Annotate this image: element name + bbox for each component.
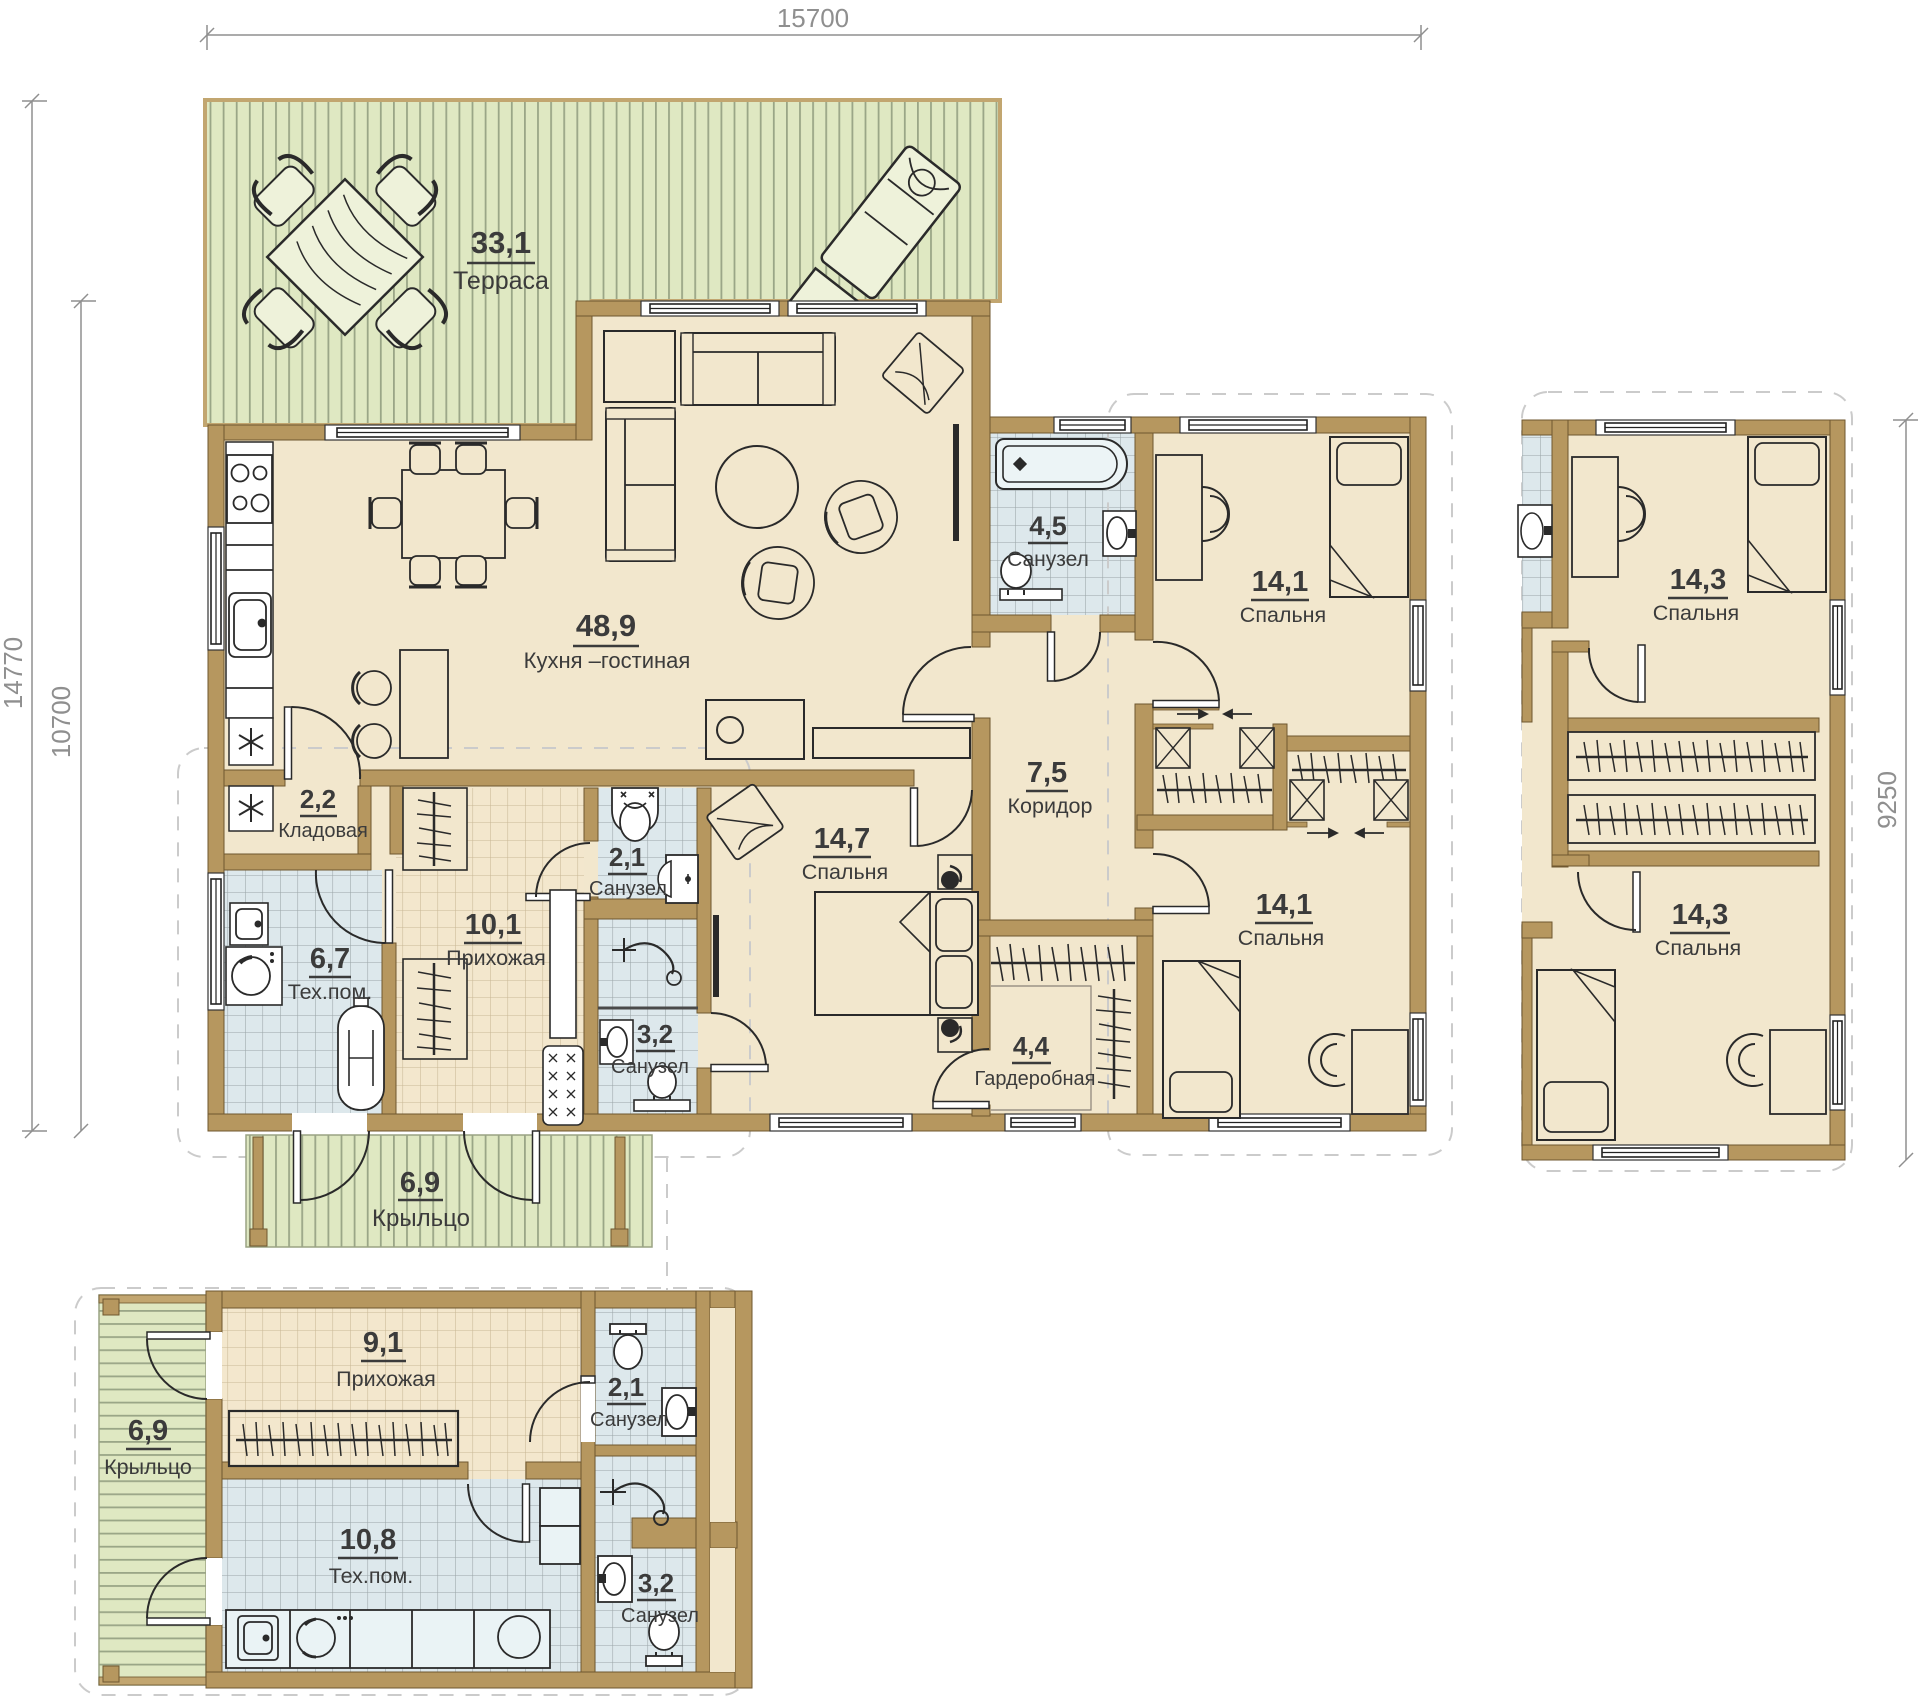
- svg-text:Санузел: Санузел: [590, 1409, 668, 1431]
- svg-text:9250: 9250: [1872, 771, 1902, 829]
- svg-text:2,1: 2,1: [608, 1372, 644, 1402]
- svg-text:48,9: 48,9: [576, 608, 636, 643]
- svg-text:Терраса: Терраса: [453, 267, 549, 295]
- svg-text:Кладовая: Кладовая: [278, 820, 368, 842]
- svg-text:Гардеробная: Гардеробная: [975, 1068, 1096, 1090]
- svg-text:Тех.пом.: Тех.пом.: [288, 980, 373, 1004]
- svg-text:Спальня: Спальня: [1240, 603, 1326, 627]
- svg-text:14,3: 14,3: [1670, 564, 1726, 596]
- svg-text:3,2: 3,2: [638, 1568, 674, 1598]
- svg-text:Прихожая: Прихожая: [446, 946, 546, 970]
- svg-text:Тех.пом.: Тех.пом.: [329, 1564, 414, 1588]
- svg-text:Спальня: Спальня: [802, 860, 888, 884]
- svg-text:15700: 15700: [777, 3, 849, 33]
- svg-text:Санузел: Санузел: [589, 878, 667, 900]
- svg-text:Кухня –гостиная: Кухня –гостиная: [524, 648, 691, 673]
- svg-text:4,5: 4,5: [1029, 511, 1067, 541]
- svg-text:9,1: 9,1: [363, 1327, 403, 1359]
- svg-text:10,8: 10,8: [340, 1524, 396, 1556]
- svg-text:Санузел: Санузел: [621, 1605, 699, 1627]
- svg-text:10700: 10700: [46, 686, 76, 758]
- svg-text:6,7: 6,7: [310, 943, 350, 975]
- svg-text:Спальня: Спальня: [1655, 936, 1741, 960]
- svg-text:Крыльцо: Крыльцо: [372, 1205, 470, 1232]
- svg-text:Крыльцо: Крыльцо: [104, 1455, 192, 1479]
- svg-text:14,1: 14,1: [1256, 889, 1312, 921]
- svg-text:14,1: 14,1: [1252, 566, 1308, 598]
- svg-text:33,1: 33,1: [471, 225, 531, 260]
- svg-text:7,5: 7,5: [1027, 757, 1067, 789]
- svg-text:6,9: 6,9: [400, 1167, 440, 1199]
- svg-text:Санузел: Санузел: [611, 1056, 689, 1078]
- svg-text:14,3: 14,3: [1672, 899, 1728, 931]
- svg-text:3,2: 3,2: [637, 1019, 673, 1049]
- svg-text:4,4: 4,4: [1013, 1031, 1050, 1061]
- svg-text:Спальня: Спальня: [1653, 601, 1739, 625]
- svg-text:14770: 14770: [0, 637, 28, 709]
- svg-text:6,9: 6,9: [128, 1415, 168, 1447]
- svg-text:Коридор: Коридор: [1008, 794, 1093, 818]
- svg-text:Спальня: Спальня: [1238, 926, 1324, 950]
- svg-text:10,1: 10,1: [465, 909, 521, 941]
- svg-text:14,7: 14,7: [814, 823, 870, 855]
- svg-text:Санузел: Санузел: [1007, 548, 1089, 571]
- svg-text:Прихожая: Прихожая: [336, 1367, 436, 1391]
- svg-text:2,2: 2,2: [300, 784, 336, 814]
- svg-text:2,1: 2,1: [609, 842, 645, 872]
